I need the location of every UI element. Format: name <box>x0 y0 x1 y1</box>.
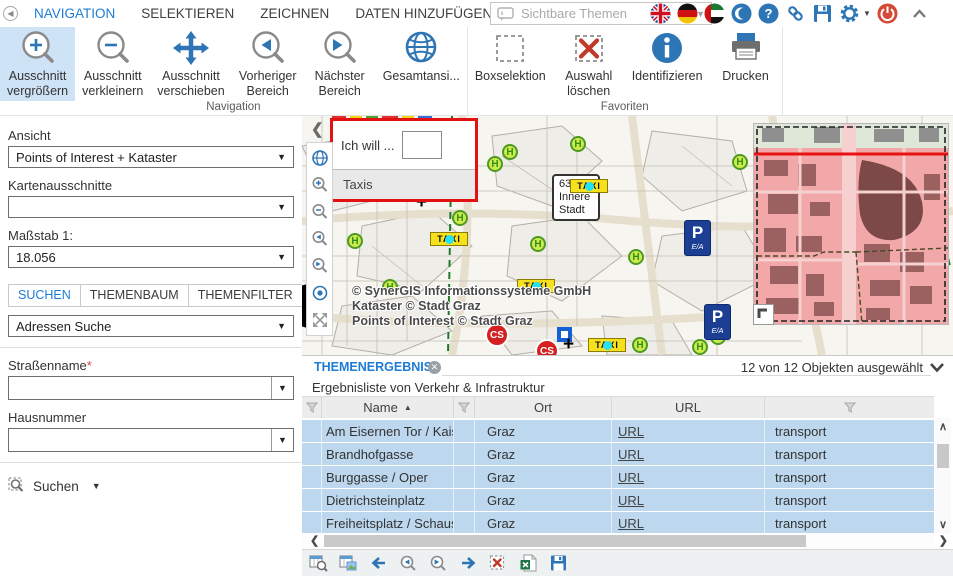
chevron-down-icon: ▼ <box>277 321 286 331</box>
previous-extent-button[interactable]: Vorheriger Bereich <box>232 27 304 101</box>
menu-item-zeichnen[interactable]: ZEICHNEN <box>260 6 329 21</box>
identify-info-icon <box>645 29 689 69</box>
zoom-in-button[interactable]: Ausschnitt vergrößern <box>0 27 75 101</box>
uk-flag-icon[interactable] <box>650 3 671 24</box>
previous-extent-tool-icon[interactable] <box>311 230 329 248</box>
center-map-tool-icon[interactable] <box>311 284 329 302</box>
column-header-ort[interactable]: Ort <box>475 397 612 418</box>
view-label: Ansicht <box>8 128 294 143</box>
globe-icon <box>399 29 443 69</box>
full-extent-button[interactable]: Gesamtansi... <box>376 27 467 101</box>
results-panel: THEMENERGEBNIS ✕ 12 von 12 Objekten ausg… <box>302 355 953 575</box>
ribbon-group-navigation: Ausschnitt vergrößern Ausschnitt verklei… <box>0 27 468 115</box>
url-link[interactable]: URL <box>618 493 644 508</box>
sort-ascending-icon: ▲ <box>404 403 412 412</box>
ich-will-popup: Ich will ... Taxis <box>330 118 478 202</box>
topbar-icon-strip: ? ▼ <box>650 3 927 24</box>
bus-stop-icon: H <box>502 144 518 160</box>
zoom-out-magnifier-icon <box>91 29 135 69</box>
table-search-icon[interactable] <box>309 554 328 572</box>
print-button[interactable]: Drucken <box>710 27 782 101</box>
german-flag-icon[interactable] <box>677 3 698 24</box>
tab-themenfilter[interactable]: THEMENFILTER <box>188 284 303 307</box>
taxi-sign-icon: TAXI <box>430 232 468 246</box>
themes-bubble-icon <box>497 7 514 21</box>
overview-map[interactable] <box>753 123 949 325</box>
tab-themenergebnis[interactable]: THEMENERGEBNIS <box>314 360 432 374</box>
divider <box>0 347 302 348</box>
ribbon-toolbar: Ausschnitt vergrößern Ausschnitt verklei… <box>0 27 953 116</box>
svg-text:?: ? <box>765 6 773 21</box>
corner-arrow-icon <box>754 305 773 324</box>
bus-stop-icon: H <box>632 337 648 353</box>
url-link[interactable]: URL <box>618 516 644 531</box>
collapse-ribbon-icon[interactable] <box>912 8 927 19</box>
excel-export-icon[interactable] <box>519 554 538 572</box>
chevron-down-icon: ▼ <box>278 383 287 393</box>
chevron-down-icon: ▼ <box>277 202 286 212</box>
clear-table-selection-icon[interactable] <box>489 554 508 572</box>
settings-menu[interactable]: ▼ <box>839 3 871 24</box>
menu-item-daten-hinzufuegen[interactable]: DATEN HINZUFÜGEN <box>355 6 492 21</box>
required-marker: * <box>87 358 92 373</box>
bus-stop-icon: H <box>628 249 644 265</box>
scale-label: Maßstab 1: <box>8 228 294 243</box>
zoom-in-magnifier-icon <box>16 29 60 69</box>
scale-select[interactable]: 18.056 ▼ <box>8 246 294 268</box>
previous-record-icon[interactable] <box>399 554 418 572</box>
parking-sign-icon: PE/A <box>684 220 711 256</box>
table-row[interactable]: DietrichsteinplatzGrazURLtransport <box>302 489 934 512</box>
divider <box>442 375 931 376</box>
column-header-name[interactable]: Name▲ <box>322 397 454 418</box>
chevron-down-icon: ▼ <box>92 481 101 491</box>
bus-stop-icon: H <box>347 233 363 249</box>
ribbon-group-favoriten: Boxselektion Auswahl löschen Identifizie… <box>468 27 783 115</box>
scroll-down-icon[interactable]: ∨ <box>935 518 951 531</box>
results-subtitle: Ergebnisliste von Verkehr & Infrastruktu… <box>302 377 953 396</box>
bus-stop-icon: H <box>487 156 503 172</box>
results-table-header: Name▲ Ort URL <box>302 396 934 418</box>
street-name-input[interactable] <box>9 377 271 399</box>
crescent-icon[interactable] <box>731 3 752 24</box>
chevron-down-icon: ▼ <box>278 435 287 445</box>
house-number-dropdown-button[interactable]: ▼ <box>271 429 293 451</box>
bus-stop-icon: H <box>570 136 586 152</box>
results-table: Name▲ Ort URL Am Eisernen Tor / Kaiserfe… <box>302 396 934 535</box>
collapse-panel-icon[interactable] <box>929 362 945 373</box>
close-icon[interactable]: ✕ <box>428 361 441 374</box>
save-table-icon[interactable] <box>549 554 568 572</box>
table-row[interactable]: Burggasse / OperGrazURLtransport <box>302 466 934 489</box>
next-extent-button[interactable]: Nächster Bereich <box>304 27 376 101</box>
bus-stop-icon: H <box>530 236 546 252</box>
left-sidebar: Ansicht Points of Interest + Kataster ▼ … <box>0 116 302 575</box>
next-record-icon[interactable] <box>429 554 448 572</box>
scroll-up-icon[interactable]: ∧ <box>935 420 951 433</box>
last-record-arrow-icon[interactable] <box>459 554 478 572</box>
taxi-sign-icon: TAXI <box>588 338 626 352</box>
house-number-label: Hausnummer <box>8 410 294 425</box>
url-link[interactable]: URL <box>618 447 644 462</box>
fullscreen-tool-icon[interactable] <box>311 311 329 329</box>
ribbon-group-label-favoriten: Favoriten <box>468 101 782 115</box>
house-number-combobox[interactable]: ▼ <box>8 428 294 452</box>
filter-icon[interactable] <box>302 397 322 418</box>
link-icon[interactable] <box>785 3 806 24</box>
pan-button[interactable]: Ausschnitt verschieben <box>150 27 231 101</box>
selection-status: 12 von 12 Objekten ausgewählt <box>741 360 923 375</box>
horizontal-scrollbar[interactable]: ❮ ❯ <box>302 533 934 549</box>
top-menu-bar: ◀ NAVIGATION SELEKTIEREN ZEICHNEN DATEN … <box>0 0 953 27</box>
menu-item-selektieren[interactable]: SELEKTIEREN <box>141 6 234 21</box>
help-icon[interactable]: ? <box>758 3 779 24</box>
globe-tool-icon[interactable] <box>311 149 329 167</box>
results-toolbar <box>302 549 953 576</box>
popup-option-taxis[interactable]: Taxis <box>333 169 475 199</box>
zoom-out-button[interactable]: Ausschnitt verkleinern <box>75 27 150 101</box>
table-maptip-icon[interactable] <box>339 554 358 572</box>
previous-extent-icon <box>246 29 290 69</box>
overview-map-image <box>754 124 948 324</box>
zoom-in-tool-icon[interactable] <box>311 176 329 194</box>
bus-stop-icon: H <box>452 210 468 226</box>
zoom-out-tool-icon[interactable] <box>311 203 329 221</box>
results-table-body: Am Eisernen Tor / KaiserfeldgasseGrazURL… <box>302 420 934 535</box>
scrollbar-thumb[interactable] <box>937 444 949 468</box>
street-name-label: Straßenname* <box>8 358 294 373</box>
tab-themenbaum[interactable]: THEMENBAUM <box>80 284 189 307</box>
printer-icon <box>724 29 768 69</box>
url-link[interactable]: URL <box>618 470 644 485</box>
chevron-down-icon: ▼ <box>277 152 286 162</box>
results-header: THEMENERGEBNIS ✕ 12 von 12 Objekten ausg… <box>302 358 953 377</box>
overview-collapse-button[interactable] <box>753 304 774 325</box>
chevron-down-icon: ▼ <box>277 252 286 262</box>
view-select[interactable]: Points of Interest + Kataster ▼ <box>8 146 294 168</box>
clear-selection-button[interactable]: Auswahl löschen <box>553 27 625 101</box>
divider <box>0 462 302 463</box>
power-icon[interactable] <box>877 3 898 24</box>
sidebar-tabs: SUCHEN THEMENBAUM THEMENFILTER <box>8 284 294 307</box>
clear-selection-icon <box>567 29 611 69</box>
box-selection-button[interactable]: Boxselektion <box>468 27 553 101</box>
app-window: ◀ NAVIGATION SELEKTIEREN ZEICHNEN DATEN … <box>0 0 953 575</box>
popup-title: Ich will ... <box>341 138 394 153</box>
map-extents-select[interactable]: ▼ <box>8 196 294 218</box>
map-copyright: © SynerGIS Informationssysteme GmbH Kata… <box>352 284 591 329</box>
bus-stop-icon: H <box>692 339 708 355</box>
table-row[interactable]: BrandhofgasseGrazURLtransport <box>302 443 934 466</box>
scroll-right-icon[interactable]: ❯ <box>939 534 948 547</box>
vertical-scrollbar[interactable]: ∧ ∨ <box>935 418 951 533</box>
search-icon <box>8 477 26 495</box>
first-record-arrow-icon[interactable] <box>369 554 388 572</box>
parking-sign-icon: PE/A <box>704 304 731 340</box>
save-icon[interactable] <box>812 3 833 24</box>
uae-flag-icon[interactable] <box>704 3 725 24</box>
column-header-url[interactable]: URL <box>612 397 765 418</box>
menu-item-navigation[interactable]: NAVIGATION <box>34 6 115 21</box>
map-extents-label: Kartenausschnitte <box>8 178 294 193</box>
house-number-input[interactable] <box>9 429 271 451</box>
search-type-select[interactable]: Adressen Suche ▼ <box>8 315 294 337</box>
ribbon-group-label-navigation: Navigation <box>0 101 467 115</box>
map-canvas[interactable]: H H H H H H H H H H H H 6310.2InnereStad… <box>302 116 953 355</box>
identify-button[interactable]: Identifizieren <box>625 27 710 101</box>
street-name-dropdown-button[interactable]: ▼ <box>271 377 293 399</box>
cross-marker-icon: + <box>563 338 574 352</box>
popup-input[interactable] <box>402 131 442 159</box>
table-row[interactable]: Am Eisernen Tor / KaiserfeldgasseGrazURL… <box>302 420 934 443</box>
box-select-icon <box>488 29 532 69</box>
pan-arrows-icon <box>169 29 213 69</box>
menu-scroll-left-icon[interactable]: ◀ <box>3 6 18 21</box>
tab-suchen[interactable]: SUCHEN <box>8 284 81 307</box>
scroll-left-icon[interactable]: ❮ <box>310 534 319 547</box>
next-extent-icon <box>318 29 362 69</box>
next-extent-tool-icon[interactable] <box>311 257 329 275</box>
street-name-combobox[interactable]: ▼ <box>8 376 294 400</box>
bus-stop-icon: H <box>732 154 748 170</box>
table-row[interactable]: Freiheitsplatz / SchauspielhausGrazURLtr… <box>302 512 934 535</box>
chevron-down-icon: ▼ <box>863 9 871 18</box>
filter-icon[interactable] <box>454 397 475 418</box>
filter-icon[interactable] <box>765 397 934 418</box>
search-button[interactable]: Suchen ▼ <box>8 477 101 495</box>
settings-gear-icon <box>839 3 860 24</box>
url-link[interactable]: URL <box>618 424 644 439</box>
taxi-sign-icon: TAXI <box>570 179 608 193</box>
collapse-sidebar-icon[interactable]: ❮ <box>311 120 324 138</box>
scrollbar-thumb[interactable] <box>324 535 806 547</box>
map-tools-panel <box>306 142 333 336</box>
